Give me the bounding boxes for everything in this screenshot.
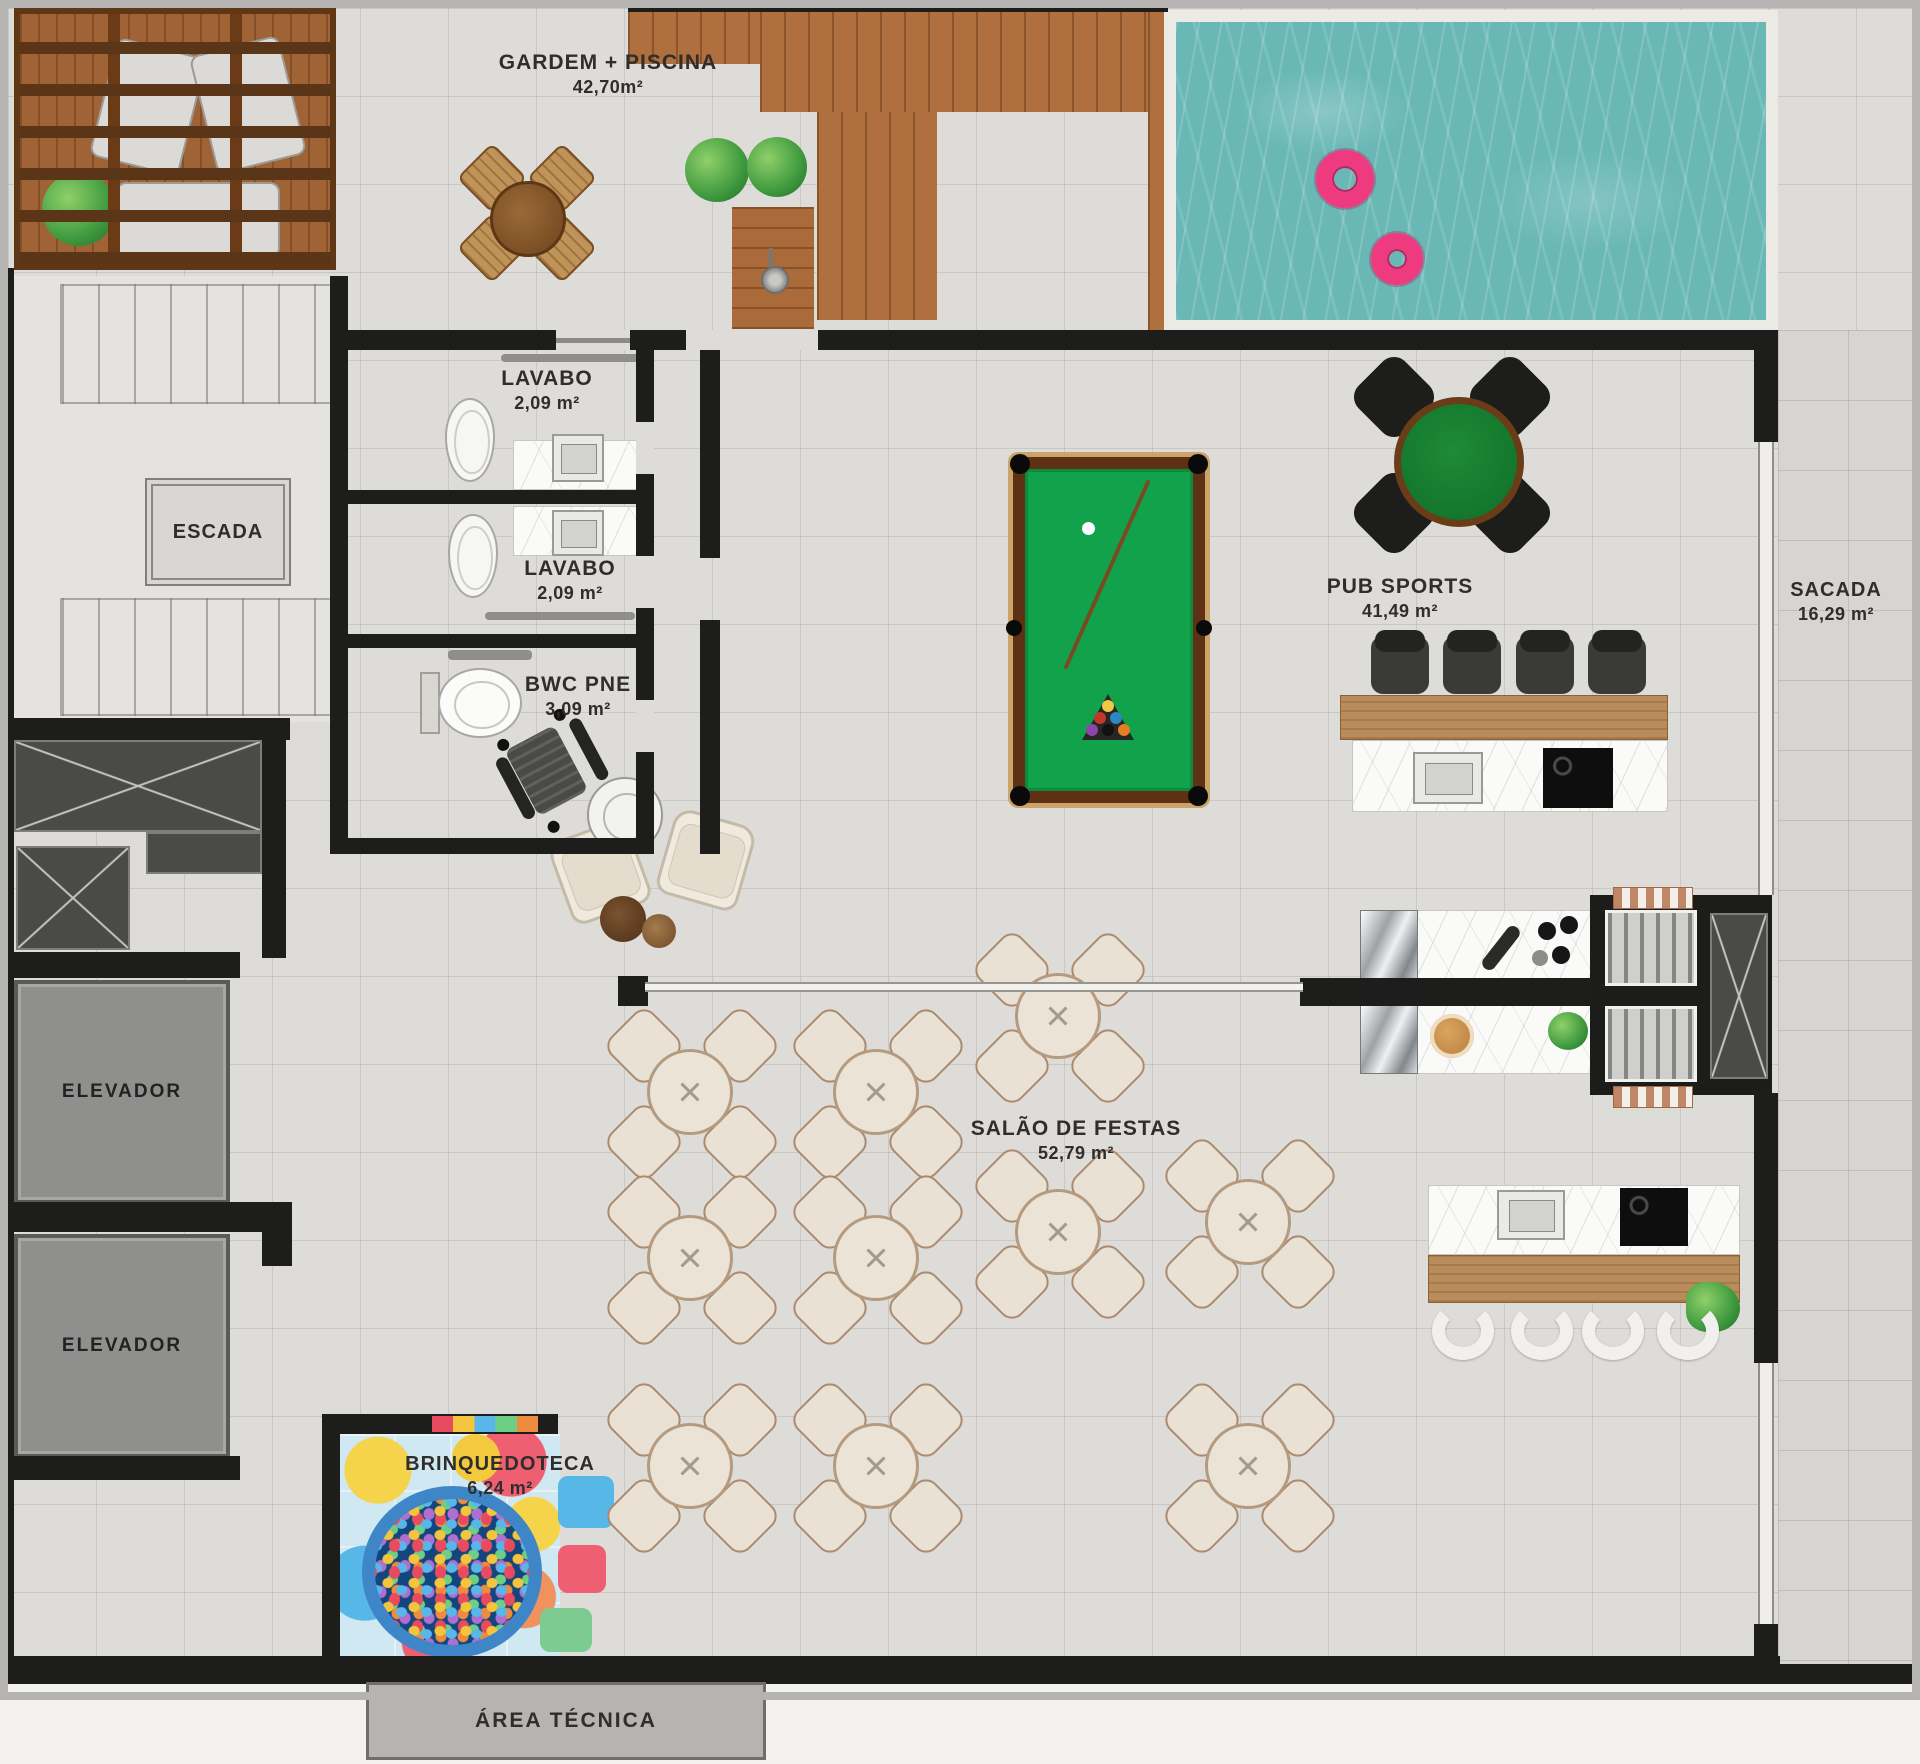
room-label-escada: ESCADA [173, 521, 263, 544]
dining-table-cluster [983, 941, 1133, 1091]
side-table [642, 914, 676, 948]
pool-float [1371, 233, 1423, 285]
wood-deck [817, 112, 937, 320]
bar-counter-marble [1352, 740, 1668, 812]
basin [561, 520, 597, 549]
dining-table [647, 1049, 733, 1135]
technical-shaft [146, 832, 262, 874]
wall [1754, 1624, 1778, 1684]
dining-table [1205, 1423, 1291, 1509]
room-label-salao: SALÃO DE FESTAS 52,79 m² [956, 1116, 1196, 1165]
wheelchair-caster [546, 819, 562, 835]
dining-table-cluster [1173, 1391, 1323, 1541]
side-table [600, 896, 646, 942]
elevator-2: ELEVADOR [14, 1234, 230, 1458]
dining-table [1205, 1179, 1291, 1265]
dining-table-cluster [801, 1183, 951, 1333]
toilet-tank [420, 672, 440, 734]
wall [0, 952, 240, 978]
grill-brick-band [1613, 887, 1693, 909]
wall [0, 1456, 240, 1480]
room-label-area-tecnica: ÁREA TÉCNICA [475, 1709, 657, 1733]
floor-plan: ESCADA GARDEM + PISCINA 42,70m² LAVABO 2… [0, 0, 1920, 1764]
ball-pit [362, 1486, 542, 1658]
bar-stool [1443, 636, 1501, 694]
basin [1509, 1200, 1556, 1231]
pergola [14, 8, 336, 270]
plate [1552, 946, 1570, 964]
towel-bar [485, 612, 635, 620]
grill [1605, 910, 1697, 986]
bar-counter-wood [1340, 695, 1668, 740]
sliding-door-track [645, 982, 1303, 992]
plant [685, 138, 749, 202]
wall [1754, 330, 1778, 442]
duct-shaft [1710, 913, 1768, 1079]
wall [1778, 1664, 1912, 1684]
grill [1605, 1006, 1697, 1082]
elevator-label: ELEVADOR [62, 1081, 182, 1103]
dining-table [647, 1215, 733, 1301]
puzzle-piece [540, 1608, 592, 1652]
dining-table [833, 1215, 919, 1301]
dining-table-cluster [615, 1017, 765, 1167]
bar-stool [1588, 636, 1646, 694]
appliance-stainless [1360, 1004, 1418, 1074]
wall [618, 976, 648, 1006]
dining-table-cluster [801, 1391, 951, 1541]
party-counter-marble [1428, 1185, 1740, 1255]
plate [1560, 916, 1578, 934]
area-tecnica-box: ÁREA TÉCNICA [366, 1682, 766, 1760]
wall [348, 490, 636, 504]
puzzle-piece [558, 1545, 606, 1593]
basin [1425, 763, 1473, 796]
technical-shaft [14, 740, 262, 832]
basin-sink [552, 510, 604, 556]
room-label-lavabo-2: LAVABO 2,09 m² [470, 556, 670, 605]
technical-shaft [16, 846, 130, 950]
plant [1548, 1012, 1588, 1050]
room-label-brinquedoteca: BRINQUEDOTECA 6,24 m² [390, 1452, 610, 1500]
outdoor-shower [761, 266, 789, 294]
stair-flight-bottom [60, 598, 338, 716]
wall [322, 1434, 340, 1662]
dining-table-cluster [615, 1391, 765, 1541]
bar-stool [1516, 636, 1574, 694]
stair-flight-top [60, 284, 338, 404]
pool-float [1316, 150, 1374, 208]
counter-stool [1511, 1302, 1573, 1360]
billiards-table [1008, 452, 1210, 808]
towel-bar [501, 354, 641, 362]
grill-brick-band [1613, 1086, 1693, 1108]
stair-label-box: ESCADA [145, 478, 291, 586]
wall [1754, 1093, 1778, 1363]
wall [348, 634, 636, 648]
wall [0, 718, 290, 740]
appliance-stainless [1360, 910, 1418, 984]
grab-bar [448, 650, 532, 660]
elevator-1: ELEVADOR [14, 980, 230, 1204]
sacada-floor [1778, 330, 1912, 1664]
wall [628, 4, 1168, 12]
wall [0, 1202, 292, 1232]
counter-stool [1432, 1302, 1494, 1360]
swimming-pool [1164, 10, 1778, 332]
dining-table-cluster [1173, 1147, 1323, 1297]
room-label-lavabo-1: LAVABO 2,09 m² [447, 366, 647, 415]
pergola-slats [20, 14, 330, 264]
room-label-sacada: SACADA 16,29 m² [1776, 578, 1896, 626]
garden-table [490, 181, 566, 257]
wood-deck [760, 8, 1164, 112]
window-band [1758, 1363, 1774, 1624]
dining-table [833, 1423, 919, 1509]
bar-cooktop [1543, 748, 1613, 808]
bar-sink [1413, 752, 1483, 804]
bowl [1532, 950, 1548, 966]
room-label-bwc-pne: BWC PNE 3,09 m² [478, 672, 678, 721]
toy-shelf [432, 1416, 538, 1432]
room-label-pub-sports: PUB SPORTS 41,49 m² [1300, 574, 1500, 623]
door-opening [636, 422, 654, 474]
door-opening [686, 330, 818, 350]
dining-table [1015, 1189, 1101, 1275]
dining-table-cluster [983, 1157, 1133, 1307]
wall [700, 350, 720, 558]
wall [348, 838, 654, 854]
plate [1538, 922, 1556, 940]
door-leaf [556, 338, 630, 343]
dining-table [833, 1049, 919, 1135]
wall [330, 276, 348, 854]
card-table [1394, 397, 1524, 527]
dining-table-cluster [615, 1183, 765, 1333]
room-label-gardem: GARDEM + PISCINA 42,70m² [468, 50, 748, 99]
party-sink [1497, 1190, 1565, 1240]
ball-rack [1008, 452, 1210, 808]
dining-table-cluster [801, 1017, 951, 1167]
dining-table [647, 1423, 733, 1509]
basin-sink [552, 434, 604, 482]
bar-stool [1371, 636, 1429, 694]
basin [561, 444, 597, 474]
fruit-tray [1430, 1014, 1474, 1058]
plant [747, 137, 807, 197]
elevator-label: ELEVADOR [62, 1335, 182, 1357]
wall [262, 1232, 292, 1266]
party-cooktop [1620, 1188, 1688, 1246]
window-band [1758, 442, 1774, 895]
wall [8, 1656, 1780, 1684]
wall [262, 740, 286, 958]
wall [700, 620, 720, 854]
counter-stool [1657, 1302, 1719, 1360]
wall [1300, 978, 1592, 1006]
counter-stool [1582, 1302, 1644, 1360]
